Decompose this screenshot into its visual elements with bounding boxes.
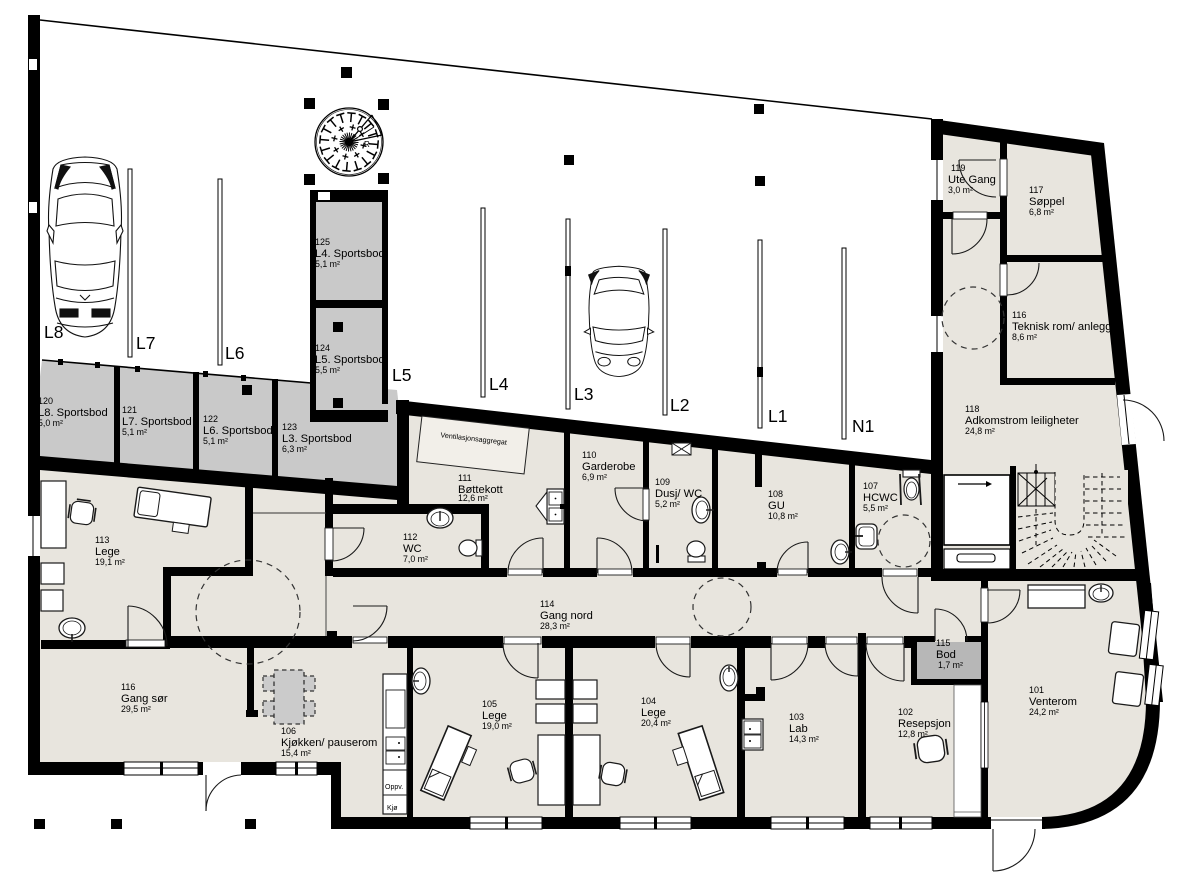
- svg-text:5,2 m²: 5,2 m²: [655, 499, 680, 509]
- svg-text:118: 118: [965, 404, 979, 414]
- svg-text:6,9 m²: 6,9 m²: [582, 472, 607, 482]
- svg-text:111: 111: [458, 473, 472, 483]
- svg-text:20,4 m²: 20,4 m²: [641, 718, 671, 728]
- svg-text:L7: L7: [136, 333, 155, 353]
- svg-text:116: 116: [121, 682, 135, 692]
- svg-text:Oppv.: Oppv.: [385, 784, 403, 791]
- svg-text:14,3 m²: 14,3 m²: [789, 734, 819, 744]
- svg-text:12,8 m²: 12,8 m²: [898, 729, 928, 739]
- svg-text:N1: N1: [852, 416, 874, 436]
- svg-text:101: 101: [1029, 685, 1044, 695]
- svg-text:5,1 m²: 5,1 m²: [122, 427, 147, 437]
- svg-text:L6: L6: [225, 343, 244, 363]
- svg-text:103: 103: [789, 712, 804, 722]
- svg-text:106: 106: [281, 726, 296, 736]
- svg-text:5,5 m²: 5,5 m²: [863, 503, 888, 513]
- svg-text:19,1 m²: 19,1 m²: [95, 557, 125, 567]
- svg-text:112: 112: [403, 532, 417, 542]
- svg-text:24,8 m²: 24,8 m²: [965, 426, 995, 436]
- svg-text:8,6 m²: 8,6 m²: [1012, 332, 1037, 342]
- svg-text:123: 123: [282, 422, 297, 432]
- svg-text:1,7 m²: 1,7 m²: [938, 660, 963, 670]
- svg-text:116: 116: [1012, 310, 1026, 320]
- svg-text:107: 107: [863, 481, 878, 491]
- svg-text:7,0 m²: 7,0 m²: [403, 554, 428, 564]
- svg-text:5,1 m²: 5,1 m²: [203, 436, 228, 446]
- svg-text:R: R: [364, 140, 370, 149]
- svg-text:5,5 m²: 5,5 m²: [315, 365, 340, 375]
- svg-text:105: 105: [482, 699, 497, 709]
- svg-text:19,0 m²: 19,0 m²: [482, 721, 512, 731]
- svg-text:24,2 m²: 24,2 m²: [1029, 707, 1059, 717]
- svg-text:109: 109: [655, 477, 670, 487]
- svg-text:5,1 m²: 5,1 m²: [315, 259, 340, 269]
- svg-text:119: 119: [951, 163, 965, 173]
- svg-text:110: 110: [582, 450, 596, 460]
- svg-text:L8: L8: [44, 322, 63, 342]
- svg-text:15,4 m²: 15,4 m²: [281, 748, 311, 758]
- svg-text:113: 113: [95, 535, 109, 545]
- svg-text:6,8 m²: 6,8 m²: [1029, 207, 1054, 217]
- svg-text:115: 115: [936, 638, 950, 648]
- svg-text:124: 124: [315, 343, 330, 353]
- svg-text:108: 108: [768, 489, 783, 499]
- svg-text:28,3 m²: 28,3 m²: [540, 621, 570, 631]
- svg-text:5,0 m²: 5,0 m²: [38, 418, 63, 428]
- svg-text:125: 125: [315, 237, 330, 247]
- svg-text:L3: L3: [574, 384, 593, 404]
- svg-text:104: 104: [641, 696, 656, 706]
- svg-text:L2: L2: [670, 395, 689, 415]
- svg-text:Kjø: Kjø: [387, 805, 398, 812]
- svg-text:6,3 m²: 6,3 m²: [282, 444, 307, 454]
- svg-text:114: 114: [540, 599, 554, 609]
- svg-text:117: 117: [1029, 185, 1043, 195]
- svg-text:10,8 m²: 10,8 m²: [768, 511, 798, 521]
- svg-text:L4: L4: [489, 374, 509, 394]
- svg-text:L1: L1: [768, 406, 787, 426]
- svg-text:3,0 m²: 3,0 m²: [948, 185, 973, 195]
- svg-text:120: 120: [38, 396, 53, 406]
- svg-text:102: 102: [898, 707, 913, 717]
- svg-text:122: 122: [203, 414, 218, 424]
- svg-text:12,6 m²: 12,6 m²: [458, 493, 488, 503]
- svg-text:L5: L5: [392, 365, 411, 385]
- svg-text:121: 121: [122, 405, 137, 415]
- svg-text:29,5 m²: 29,5 m²: [121, 704, 151, 714]
